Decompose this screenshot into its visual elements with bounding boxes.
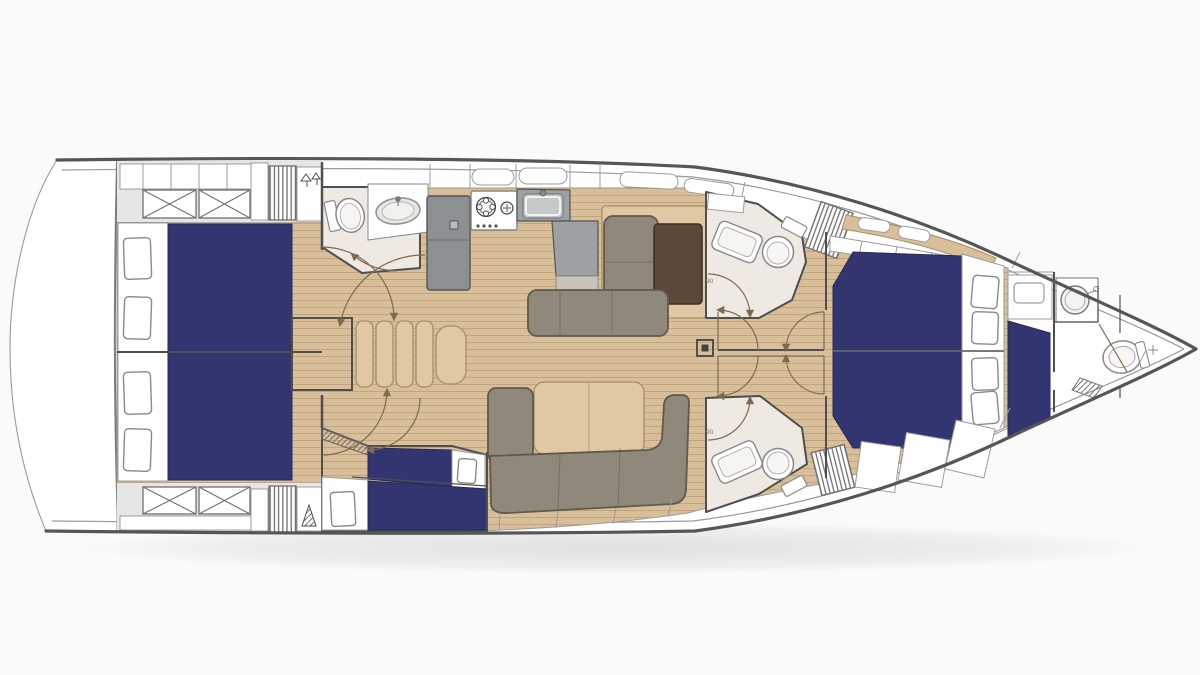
double-berth	[833, 252, 962, 448]
vanity-top	[1014, 283, 1044, 303]
counter-step	[556, 276, 598, 291]
aft-cabinet-band	[120, 516, 258, 530]
galley-sink-icon	[517, 189, 570, 221]
deck-window	[472, 169, 514, 185]
pillow	[123, 297, 151, 340]
pillow	[457, 458, 477, 483]
sink-icon	[368, 184, 428, 240]
deck-window	[519, 168, 567, 184]
deck-hatch-icon	[143, 487, 196, 514]
pillow	[123, 429, 151, 472]
crew-berth	[1008, 321, 1050, 436]
deck-window	[620, 171, 679, 189]
single-berth	[368, 481, 487, 530]
aft-deck-strip-bottom	[117, 483, 322, 532]
pillow	[123, 372, 151, 415]
double-berth	[168, 224, 292, 352]
locker	[251, 489, 268, 531]
door-angle-label: 90	[706, 429, 714, 436]
galley-counter	[552, 221, 598, 276]
aft-cabin-port	[118, 223, 292, 352]
deck-hatch-icon	[199, 190, 250, 218]
dinette-sofa-seat	[528, 290, 668, 336]
pillow	[123, 238, 151, 280]
aft-cabinet-band	[120, 164, 258, 189]
deck-hatch-icon	[199, 487, 250, 514]
deck-hatch-icon	[143, 190, 196, 218]
yacht-floor-plan-page: 90 90	[0, 0, 1200, 675]
refrigerator-icon	[427, 196, 470, 290]
louvered-vent-icon	[269, 486, 296, 532]
hanging-locker-icon	[297, 167, 322, 221]
cabinet	[707, 193, 744, 213]
stove-icon	[471, 191, 517, 230]
locker	[251, 163, 268, 220]
door-angle-label: 90	[706, 278, 714, 285]
yacht-floor-plan-svg: 90 90	[0, 0, 1200, 675]
pillow	[971, 275, 1000, 309]
hanging-locker-icon	[297, 487, 322, 531]
pillow	[971, 312, 998, 345]
pillow	[971, 358, 998, 391]
companionway-steps	[356, 321, 466, 387]
louvered-vent-icon	[269, 166, 296, 220]
double-berth	[168, 352, 292, 480]
pillow	[330, 491, 356, 526]
aft-deck-strip-top	[117, 161, 322, 222]
pillow	[971, 391, 1000, 425]
salon-sofa-back	[488, 388, 533, 462]
